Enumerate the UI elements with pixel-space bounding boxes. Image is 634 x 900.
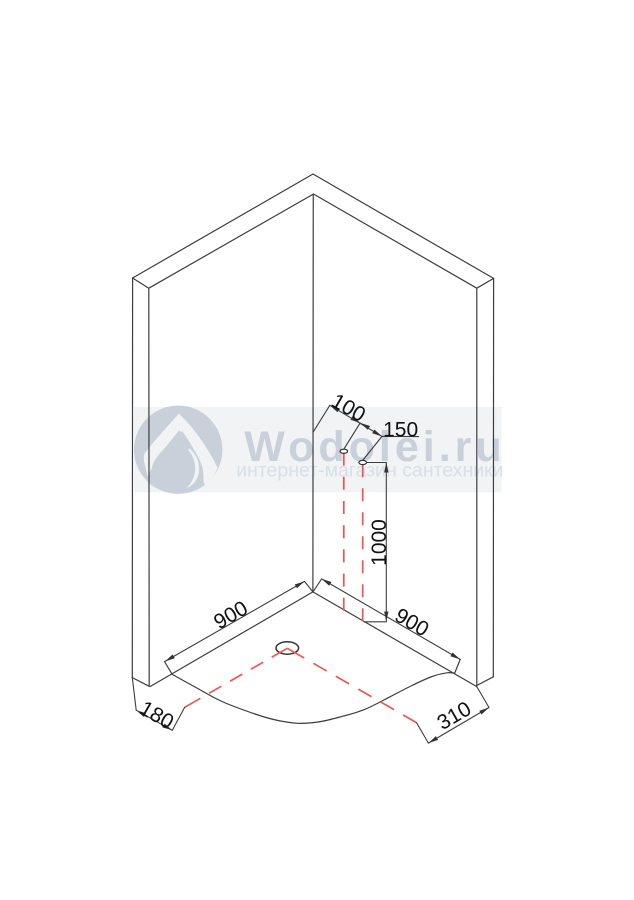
svg-text:1000: 1000 [368, 519, 391, 566]
svg-text:150: 150 [383, 419, 418, 442]
